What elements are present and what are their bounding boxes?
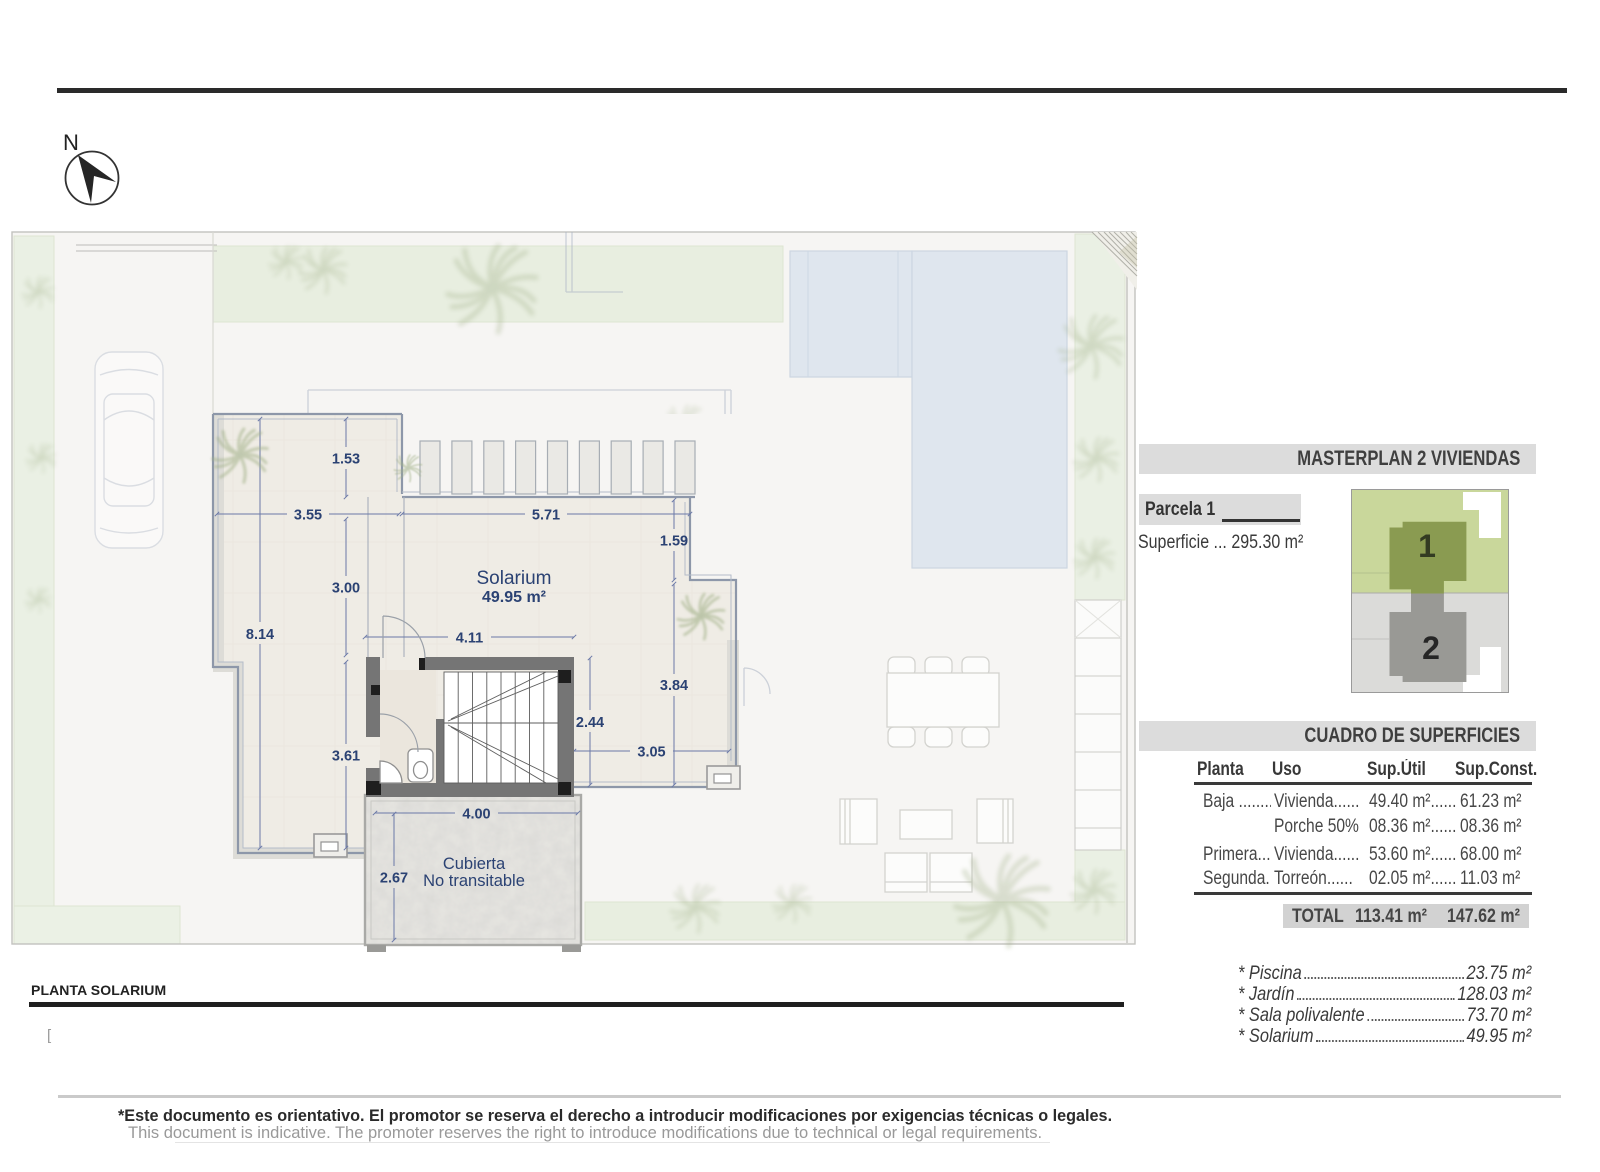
svg-text:8.14: 8.14 [246,627,274,643]
svg-text:49.95 m²: 49.95 m² [482,589,546,606]
svg-text:3.61: 3.61 [332,749,360,765]
svg-text:4.11: 4.11 [456,631,483,647]
svg-text:Cubierta: Cubierta [443,855,506,873]
svg-text:4.00: 4.00 [462,807,490,823]
svg-text:2: 2 [1422,630,1440,666]
svg-text:Solarium: Solarium [477,568,552,589]
svg-text:3.05: 3.05 [637,745,665,761]
svg-text:N: N [63,130,79,155]
svg-text:2.67: 2.67 [380,871,408,887]
svg-text:3.55: 3.55 [294,508,322,524]
svg-text:1.53: 1.53 [332,452,360,468]
svg-text:No transitable: No transitable [423,872,525,890]
svg-text:1.59: 1.59 [660,534,688,550]
svg-text:5.71: 5.71 [532,508,560,524]
svg-text:3.00: 3.00 [332,581,360,597]
svg-text:2.44: 2.44 [576,715,604,731]
svg-text:1: 1 [1418,528,1436,564]
svg-text:3.84: 3.84 [660,678,688,694]
